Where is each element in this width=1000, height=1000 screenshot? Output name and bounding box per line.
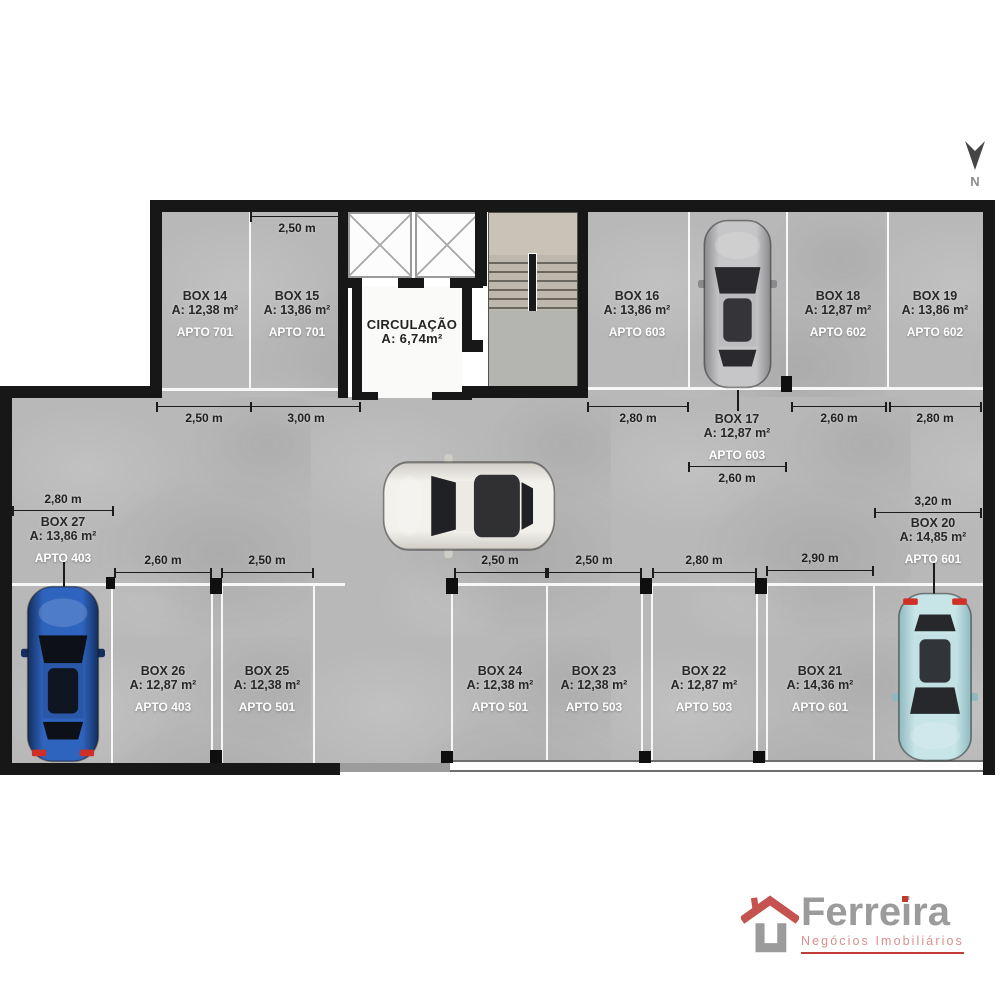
parking-box-17-label: BOX 17A: 12,87 m²APTO 603	[704, 413, 771, 463]
wall-segment	[150, 200, 995, 212]
agency-logo: Ferreira Negócios Imobiliários	[741, 891, 964, 957]
parking-stall-line	[211, 586, 213, 763]
wall-segment	[462, 340, 483, 352]
parking-box-19-label: BOX 19A: 13,86 m²APTO 602	[902, 290, 969, 340]
box-14-area: A: 12,38 m²	[172, 304, 239, 318]
parked-car-box-20	[892, 592, 978, 762]
box-27-title: BOX 27	[41, 516, 85, 530]
parking-stall-line	[641, 586, 643, 763]
wall-segment	[475, 206, 487, 286]
parking-stall-line	[450, 583, 762, 586]
circulation-title: CIRCULAÇÃO	[367, 318, 457, 332]
dimension-label: 2,80 m	[619, 411, 656, 425]
dimension-label: 2,50 m	[575, 553, 612, 567]
parking-stall-line	[451, 586, 453, 763]
parked-car-box-17	[698, 219, 777, 389]
box-23-area: A: 12,38 m²	[561, 679, 628, 693]
parking-stall-line	[887, 212, 889, 388]
box-16-area: A: 13,86 m²	[604, 304, 671, 318]
dimension-line	[251, 216, 344, 217]
structural-column	[210, 578, 222, 594]
box-18-title: BOX 18	[816, 290, 860, 304]
wall-segment	[578, 206, 588, 398]
parking-box-26-label: BOX 26A: 12,87 m²APTO 403	[130, 665, 197, 715]
driving-car-aisle	[382, 454, 556, 558]
dimension-line	[588, 406, 688, 407]
box-26-title: BOX 26	[141, 665, 185, 679]
structural-column	[640, 578, 652, 594]
dimension-line	[890, 406, 981, 407]
wall-segment	[398, 278, 424, 288]
north-indicator: N	[962, 140, 988, 189]
box-23-apto: APTO 503	[566, 701, 622, 715]
circulation-area: A: 6,74m²	[367, 332, 457, 346]
box-19-title: BOX 19	[913, 290, 957, 304]
box-19-area: A: 13,86 m²	[902, 304, 969, 318]
box-21-apto: APTO 601	[792, 701, 848, 715]
structural-column	[446, 578, 458, 594]
logo-title: Ferreira	[801, 891, 964, 933]
box-21-area: A: 14,36 m²	[787, 679, 854, 693]
box-19-apto: APTO 602	[907, 326, 963, 340]
box-27-area: A: 13,86 m²	[30, 530, 97, 544]
logo-i-dot	[902, 896, 908, 902]
box-16-title: BOX 16	[615, 290, 659, 304]
structural-column	[210, 750, 222, 763]
wall-segment	[983, 200, 995, 775]
dimension-line	[689, 466, 786, 467]
dimension-line	[115, 572, 211, 573]
box-17-title: BOX 17	[715, 413, 759, 427]
parking-box-15-label: BOX 15A: 13,86 m²APTO 701	[264, 290, 331, 340]
parking-stall-line	[249, 212, 251, 388]
wall-segment	[352, 392, 378, 400]
box-18-area: A: 12,87 m²	[805, 304, 872, 318]
dimension-label: 3,20 m	[914, 494, 951, 508]
wall-segment	[338, 206, 348, 398]
dimension-label: 2,60 m	[718, 471, 755, 485]
elevator-shaft	[415, 212, 479, 278]
wall-segment	[0, 763, 340, 775]
parking-box-23-label: BOX 23A: 12,38 m²APTO 503	[561, 665, 628, 715]
dimension-line	[548, 572, 641, 573]
box-22-title: BOX 22	[682, 665, 726, 679]
dimension-label: 2,50 m	[248, 553, 285, 567]
box-25-apto: APTO 501	[239, 701, 295, 715]
parking-stall-line	[313, 586, 315, 763]
dimension-label: 2,80 m	[44, 492, 81, 506]
dimension-label: 2,90 m	[801, 551, 838, 565]
dimension-label: 2,80 m	[685, 553, 722, 567]
leader-line	[737, 390, 739, 411]
dimension-label: 2,60 m	[144, 553, 181, 567]
structural-column	[441, 751, 453, 763]
box-17-apto: APTO 603	[709, 449, 765, 463]
dimension-line	[13, 510, 113, 511]
structural-column	[106, 577, 115, 589]
box-23-title: BOX 23	[572, 665, 616, 679]
elevator-shaft	[348, 212, 412, 278]
structural-column	[753, 751, 765, 763]
wall-segment	[352, 278, 362, 400]
structural-column	[781, 376, 792, 392]
box-20-title: BOX 20	[911, 517, 955, 531]
parking-stall-line	[111, 586, 113, 763]
parking-box-21-label: BOX 21A: 14,36 m²APTO 601	[787, 665, 854, 715]
parking-stall-line	[651, 586, 653, 763]
box-26-apto: APTO 403	[135, 701, 191, 715]
dimension-line	[792, 406, 886, 407]
wall-segment	[462, 386, 588, 398]
stair-landing-bottom	[489, 311, 577, 391]
parked-car-box-27	[21, 585, 105, 763]
box-15-apto: APTO 701	[269, 326, 325, 340]
north-label: N	[962, 174, 988, 189]
parking-box-22-label: BOX 22A: 12,87 m²APTO 503	[671, 665, 738, 715]
parking-stall-line	[221, 586, 223, 763]
parking-stall-line	[766, 586, 768, 763]
parking-box-18-label: BOX 18A: 12,87 m²APTO 602	[805, 290, 872, 340]
box-22-area: A: 12,87 m²	[671, 679, 738, 693]
box-17-area: A: 12,87 m²	[704, 427, 771, 441]
box-26-area: A: 12,87 m²	[130, 679, 197, 693]
ramp-edge	[337, 763, 450, 772]
box-22-apto: APTO 503	[676, 701, 732, 715]
parking-stall-line	[760, 583, 983, 586]
dimension-line	[455, 572, 546, 573]
dimension-line	[222, 572, 313, 573]
north-arrow-icon	[962, 140, 988, 172]
box-24-apto: APTO 501	[472, 701, 528, 715]
box-20-area: A: 14,85 m²	[900, 531, 967, 545]
dimension-line	[157, 406, 251, 407]
dimension-label: 2,60 m	[820, 411, 857, 425]
dimension-line	[251, 406, 360, 407]
box-24-area: A: 12,38 m²	[467, 679, 534, 693]
parking-box-25-label: BOX 25A: 12,38 m²APTO 501	[234, 665, 301, 715]
box-14-apto: APTO 701	[177, 326, 233, 340]
parking-stall-line	[546, 586, 548, 763]
dimension-label: 3,00 m	[287, 411, 324, 425]
box-16-apto: APTO 603	[609, 326, 665, 340]
logo-underline	[801, 952, 964, 954]
box-25-title: BOX 25	[245, 665, 289, 679]
wall-segment	[150, 200, 162, 398]
box-25-area: A: 12,38 m²	[234, 679, 301, 693]
wall-segment	[0, 386, 12, 775]
dimension-line	[653, 572, 756, 573]
logo-house-icon	[741, 893, 799, 957]
garage-floor-plan: CIRCULAÇÃO A: 6,74m² N Ferreira Negócios…	[0, 0, 1000, 1000]
box-14-title: BOX 14	[183, 290, 227, 304]
box-15-title: BOX 15	[275, 290, 319, 304]
structural-column	[755, 578, 767, 594]
parking-box-20-label: BOX 20A: 14,85 m²APTO 601	[900, 517, 967, 567]
dimension-label: 2,50 m	[185, 411, 222, 425]
staircase	[488, 212, 578, 390]
box-18-apto: APTO 602	[810, 326, 866, 340]
dimension-line	[875, 512, 981, 513]
stair-landing-top	[489, 213, 577, 255]
box-24-title: BOX 24	[478, 665, 522, 679]
structural-column	[639, 751, 651, 763]
parking-stall-line	[873, 586, 875, 763]
parking-box-16-label: BOX 16A: 13,86 m²APTO 603	[604, 290, 671, 340]
parking-stall-line	[688, 212, 690, 388]
parking-box-14-label: BOX 14A: 12,38 m²APTO 701	[172, 290, 239, 340]
wall-segment	[432, 392, 472, 400]
box-21-title: BOX 21	[798, 665, 842, 679]
logo-subtitle: Negócios Imobiliários	[801, 934, 964, 948]
parking-box-27-label: BOX 27A: 13,86 m²APTO 403	[30, 516, 97, 566]
dimension-label: 2,80 m	[916, 411, 953, 425]
parking-stall-line	[756, 586, 758, 763]
dimension-label: 2,50 m	[278, 221, 315, 235]
parking-box-24-label: BOX 24A: 12,38 m²APTO 501	[467, 665, 534, 715]
parking-stall-line	[786, 212, 788, 388]
box-15-area: A: 13,86 m²	[264, 304, 331, 318]
wall-segment	[0, 386, 162, 398]
stair-divider	[528, 253, 537, 315]
parking-stall-line	[161, 388, 345, 391]
dimension-line	[767, 570, 873, 571]
circulation-label: CIRCULAÇÃO A: 6,74m²	[367, 318, 457, 346]
